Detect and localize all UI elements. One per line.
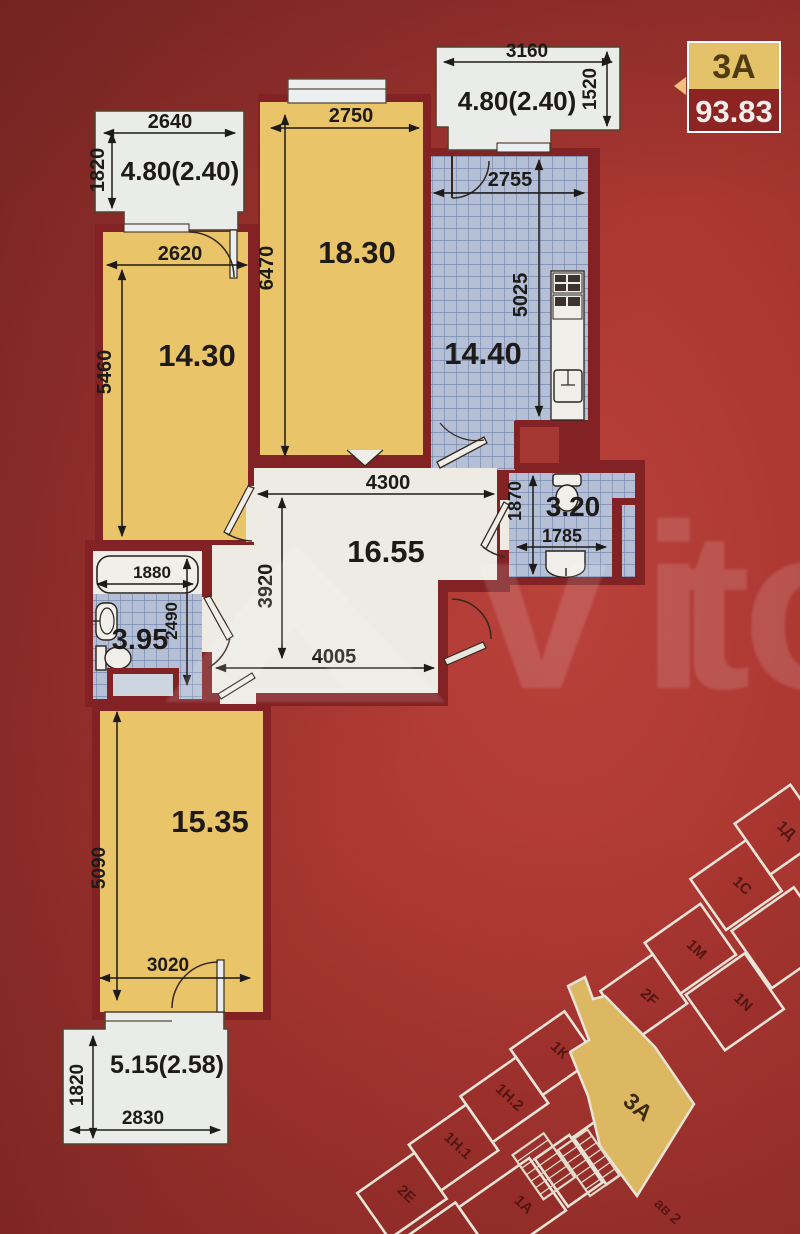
svg-text:1880: 1880 (133, 563, 171, 582)
svg-text:1520: 1520 (580, 68, 601, 110)
svg-text:5090: 5090 (89, 847, 110, 889)
svg-text:t: t (676, 484, 751, 736)
svg-text:6470: 6470 (256, 246, 278, 291)
svg-text:14.30: 14.30 (158, 338, 236, 373)
svg-text:2750: 2750 (329, 105, 374, 127)
svg-text:4300: 4300 (366, 472, 411, 494)
svg-text:2830: 2830 (122, 1108, 164, 1129)
svg-text:16.55: 16.55 (347, 534, 425, 569)
svg-text:2755: 2755 (488, 169, 533, 191)
svg-text:2640: 2640 (148, 111, 193, 133)
svg-text:14.40: 14.40 (444, 336, 522, 371)
svg-text:5025: 5025 (510, 273, 532, 318)
svg-text:15.35: 15.35 (171, 804, 249, 839)
svg-text:5.15(2.58): 5.15(2.58) (110, 1051, 224, 1079)
svg-text:3.95: 3.95 (112, 624, 168, 656)
svg-text:4.80(2.40): 4.80(2.40) (121, 156, 240, 186)
svg-text:93.83: 93.83 (695, 94, 773, 129)
svg-text:3020: 3020 (147, 955, 189, 976)
svg-text:1820: 1820 (87, 148, 109, 193)
svg-text:18.30: 18.30 (318, 235, 396, 270)
svg-text:5460: 5460 (94, 350, 116, 395)
svg-text:3160: 3160 (506, 41, 548, 62)
svg-text:4.80(2.40): 4.80(2.40) (458, 86, 577, 116)
svg-text:v: v (477, 475, 608, 738)
svg-text:2620: 2620 (158, 243, 203, 265)
svg-text:1820: 1820 (67, 1064, 88, 1106)
svg-text:3А: 3А (712, 48, 755, 86)
svg-text:o: o (742, 475, 800, 738)
